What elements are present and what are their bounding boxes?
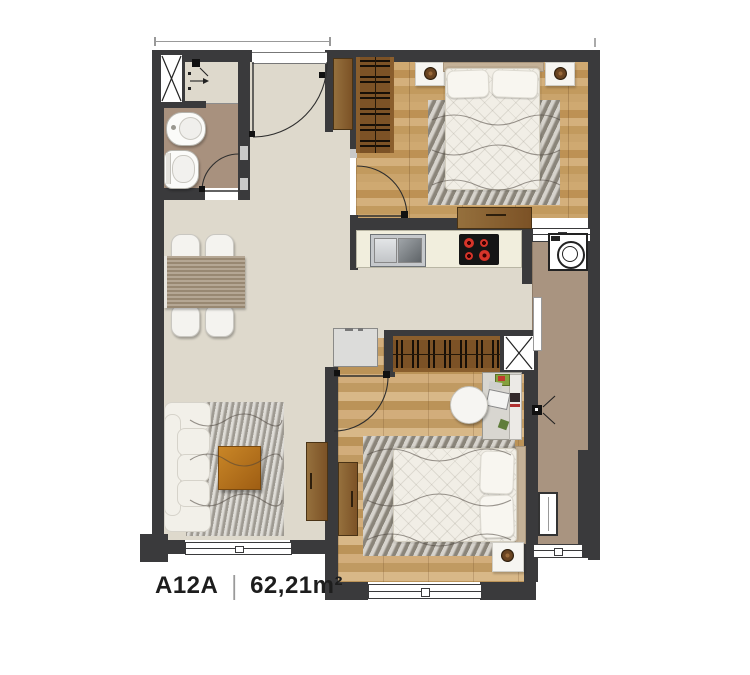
- bedroom2-dresser: [338, 462, 358, 536]
- burner: [480, 239, 488, 247]
- laptop: [485, 389, 510, 410]
- bed-pillow: [479, 450, 514, 494]
- dining-chair: [171, 304, 200, 337]
- washer-control: [551, 236, 560, 241]
- window-tick: [235, 546, 244, 554]
- wall-sill-patch: [240, 146, 248, 160]
- drain-center: [535, 408, 538, 411]
- shaft-box-bathroom: [158, 52, 185, 105]
- unit-code: A12A: [155, 572, 218, 600]
- sink-bowl: [179, 117, 202, 140]
- bedroom2-wardrobe: [393, 336, 500, 372]
- dresser-handle: [351, 491, 353, 507]
- washer-drum-inner: [562, 246, 578, 262]
- wardrobe-edge: [356, 57, 360, 153]
- tv-cabinet: [306, 442, 328, 521]
- dresser-handle: [486, 214, 506, 216]
- refrigerator: [333, 328, 378, 367]
- wardrobe-edge: [390, 57, 394, 153]
- wall-kitchen-right: [522, 228, 532, 284]
- sliding-door-panel: [533, 297, 542, 351]
- desk-shelf: [509, 374, 522, 440]
- wall-right-thick-section: [578, 450, 600, 558]
- nightstand-lamp: [501, 549, 514, 562]
- toilet-tank: [166, 153, 171, 184]
- window-tick: [421, 588, 430, 597]
- toilet-bowl: [172, 155, 195, 183]
- sink-basin-right: [398, 238, 422, 263]
- burner: [465, 252, 473, 260]
- burner: [464, 238, 474, 248]
- floor-plan: A12A | 62,21m²: [0, 0, 750, 675]
- dimension-tick: [594, 38, 596, 47]
- living-window: [185, 542, 292, 555]
- sink-basin-left: [374, 238, 397, 263]
- entry-shoe-cabinet: [333, 58, 353, 130]
- cooktop-icon: [459, 234, 499, 265]
- shower-partition-line: [206, 103, 238, 104]
- sink-faucet: [171, 125, 176, 130]
- dimension-line: [155, 41, 330, 42]
- kitchen-sink-icon: [370, 234, 426, 267]
- burner: [479, 250, 490, 261]
- wall-living-bottom-left: [152, 540, 185, 554]
- desk-box-red: [510, 404, 520, 407]
- desk-box: [510, 393, 520, 402]
- floor-drain-icon: [532, 405, 542, 415]
- wardrobe-edge: [393, 336, 500, 340]
- wall-sill-patch: [240, 178, 248, 190]
- wall-bathroom-bottom: [152, 188, 205, 200]
- fridge-hinge: [345, 328, 353, 331]
- cabinet-handle: [310, 473, 312, 489]
- dimension-tick: [154, 37, 156, 46]
- bedroom1-wardrobe: [356, 57, 394, 153]
- wall-living-bottom-right: [290, 540, 335, 554]
- bed-pillow: [492, 69, 539, 99]
- dining-table: [164, 256, 245, 308]
- wall-bedroom2-bottom-right: [480, 582, 536, 600]
- bed-pillow: [479, 494, 514, 538]
- sofa-seat-cushion: [177, 428, 210, 456]
- nightstand-lamp: [424, 67, 437, 80]
- wardrobe-rail: [375, 57, 376, 153]
- sofa-seat-cushion: [177, 480, 210, 507]
- desk: [482, 372, 522, 440]
- window-tick: [554, 548, 563, 556]
- bedroom1-dresser: [457, 207, 532, 229]
- unit-separator: |: [231, 570, 237, 601]
- balcony-railing: [533, 544, 583, 558]
- fridge-hinge: [358, 328, 363, 331]
- bedroom2-window: [368, 584, 482, 599]
- dimension-tick: [329, 37, 331, 46]
- sofa-seat-cushion: [177, 454, 210, 482]
- kitchen-floor: [350, 268, 522, 330]
- desk-book-red: [498, 376, 505, 381]
- dining-chair: [205, 304, 234, 337]
- entry-threshold: [252, 52, 327, 64]
- unit-area: 62,21m²: [250, 572, 343, 600]
- coffee-table: [218, 446, 261, 490]
- shower-drain-icon: [192, 59, 200, 67]
- washing-machine-icon: [548, 233, 588, 271]
- ac-unit-line: [548, 497, 549, 531]
- ac-unit: [538, 492, 558, 536]
- bed-pillow: [447, 69, 490, 98]
- desk-plant: [498, 419, 510, 431]
- nightstand-lamp: [554, 67, 567, 80]
- desk-chair: [450, 386, 488, 424]
- unit-label: A12A | 62,21m²: [155, 572, 343, 600]
- wall-left: [152, 50, 164, 555]
- wardrobe-rail: [393, 354, 500, 355]
